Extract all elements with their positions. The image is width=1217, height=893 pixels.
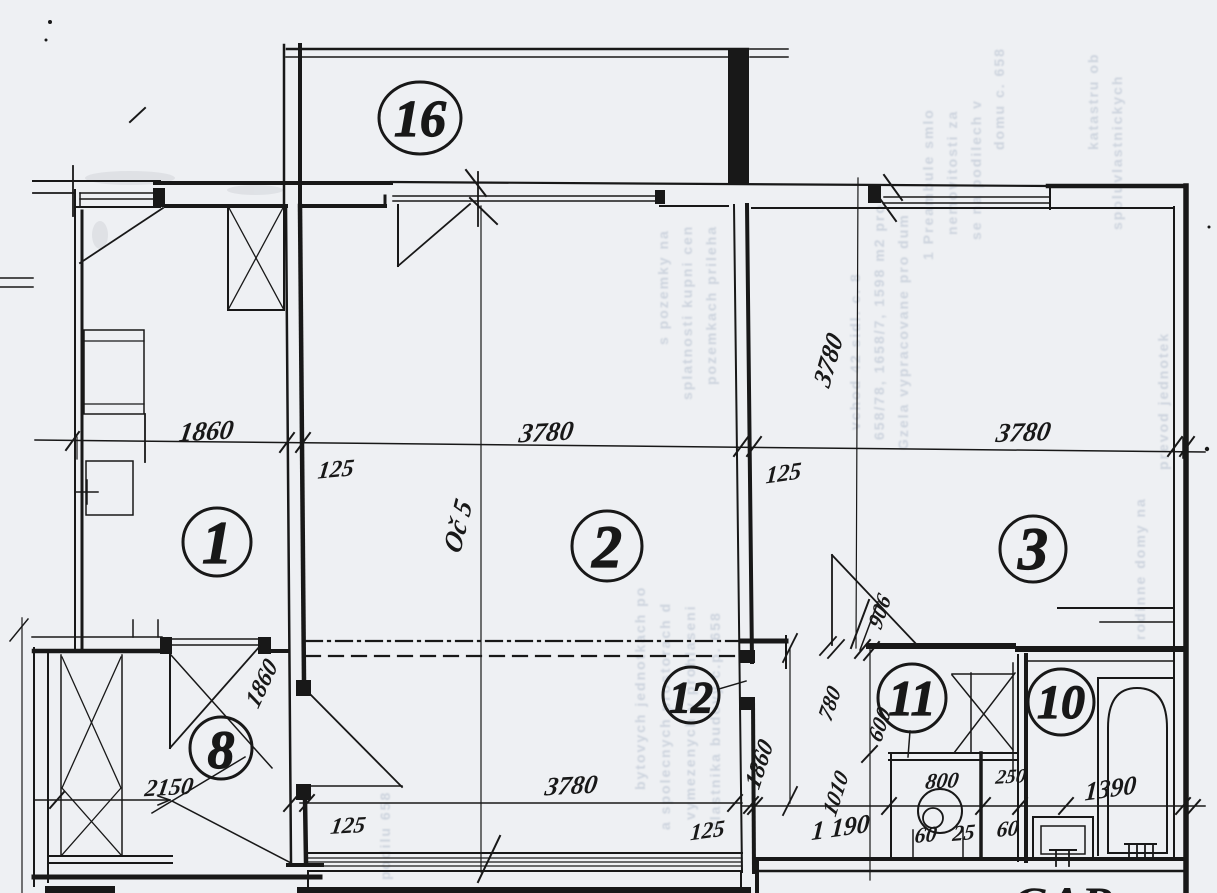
svg-text:1 Preambule smlo: 1 Preambule smlo (920, 108, 936, 260)
svg-text:16: 16 (394, 91, 446, 148)
svg-text:3780: 3780 (542, 770, 599, 802)
svg-text:2: 2 (591, 514, 622, 580)
svg-text:katastru ob: katastru ob (1085, 53, 1101, 150)
svg-text:splatnosti kupni cen: splatnosti kupni cen (679, 225, 695, 400)
svg-text:250: 250 (993, 765, 1027, 789)
svg-text:1: 1 (202, 510, 232, 576)
svg-text:60: 60 (913, 821, 938, 848)
svg-text:domu c. 658: domu c. 658 (991, 47, 1007, 150)
svg-text:3: 3 (1017, 516, 1048, 582)
svg-text:3780: 3780 (516, 416, 576, 449)
svg-text:GAR: GAR (1012, 876, 1115, 893)
svg-text:125: 125 (690, 815, 726, 846)
svg-text:25: 25 (950, 819, 976, 846)
svg-text:12: 12 (669, 673, 713, 722)
svg-text:8: 8 (208, 720, 235, 780)
svg-text:125: 125 (765, 457, 803, 489)
svg-text:prevod jednotek: prevod jednotek (1155, 332, 1171, 470)
svg-text:11: 11 (888, 670, 935, 726)
svg-text:1860: 1860 (177, 415, 236, 448)
svg-text:vchod 42 sidl. c. 8: vchod 42 sidl. c. 8 (847, 272, 863, 430)
svg-text:2150: 2150 (142, 773, 195, 803)
svg-text:pozemkach prileha: pozemkach prileha (703, 225, 719, 385)
svg-text:spoluvlastnickych: spoluvlastnickych (1109, 75, 1125, 230)
svg-text:800: 800 (924, 767, 961, 794)
svg-text:10: 10 (1037, 676, 1085, 729)
svg-text:60: 60 (995, 815, 1020, 842)
svg-text:125: 125 (329, 812, 368, 840)
svg-text:bytovych jednotkach po: bytovych jednotkach po (632, 586, 648, 790)
svg-text:658/78, 1658/7, 1598 m2 pro: 658/78, 1658/7, 1598 m2 pro (871, 203, 887, 440)
svg-text:s pozemky na: s pozemky na (655, 229, 671, 345)
svg-text:se na podilech v: se na podilech v (968, 99, 984, 240)
svg-text:rodinne domy na: rodinne domy na (1132, 497, 1148, 640)
svg-text:Gzela vypracovane pro dum: Gzela vypracovane pro dum (895, 213, 911, 450)
svg-text:125: 125 (316, 454, 355, 484)
svg-text:3780: 3780 (993, 416, 1054, 448)
svg-text:nemovitosti za: nemovitosti za (944, 110, 960, 235)
